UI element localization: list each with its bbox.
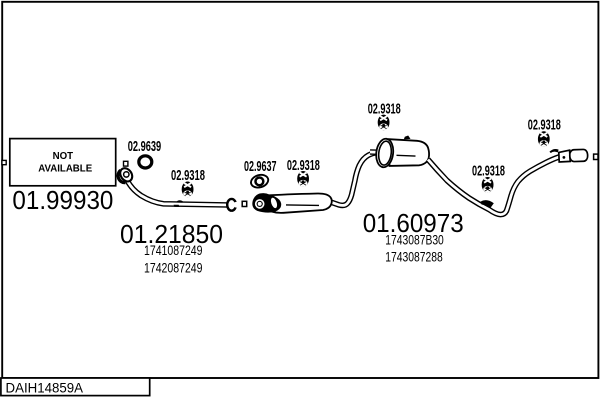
svg-text:1743087B30: 1743087B30 xyxy=(385,233,444,248)
svg-text:AVAILABLE: AVAILABLE xyxy=(38,164,92,175)
svg-text:02.9318: 02.9318 xyxy=(528,118,561,134)
svg-text:01.99930: 01.99930 xyxy=(12,185,113,215)
svg-text:1742087249: 1742087249 xyxy=(144,261,203,276)
svg-text:02.9639: 02.9639 xyxy=(128,139,162,155)
svg-text:02.9318: 02.9318 xyxy=(171,168,205,184)
svg-text:02.9318: 02.9318 xyxy=(368,102,401,118)
svg-text:02.9318: 02.9318 xyxy=(287,158,320,174)
svg-text:NOT: NOT xyxy=(53,151,74,162)
svg-text:1743087288: 1743087288 xyxy=(385,249,443,264)
svg-text:DAIH14859A: DAIH14859A xyxy=(6,380,84,396)
svg-text:1741087249: 1741087249 xyxy=(144,243,203,258)
svg-text:02.9637: 02.9637 xyxy=(244,159,277,175)
svg-text:02.9318: 02.9318 xyxy=(472,163,505,179)
